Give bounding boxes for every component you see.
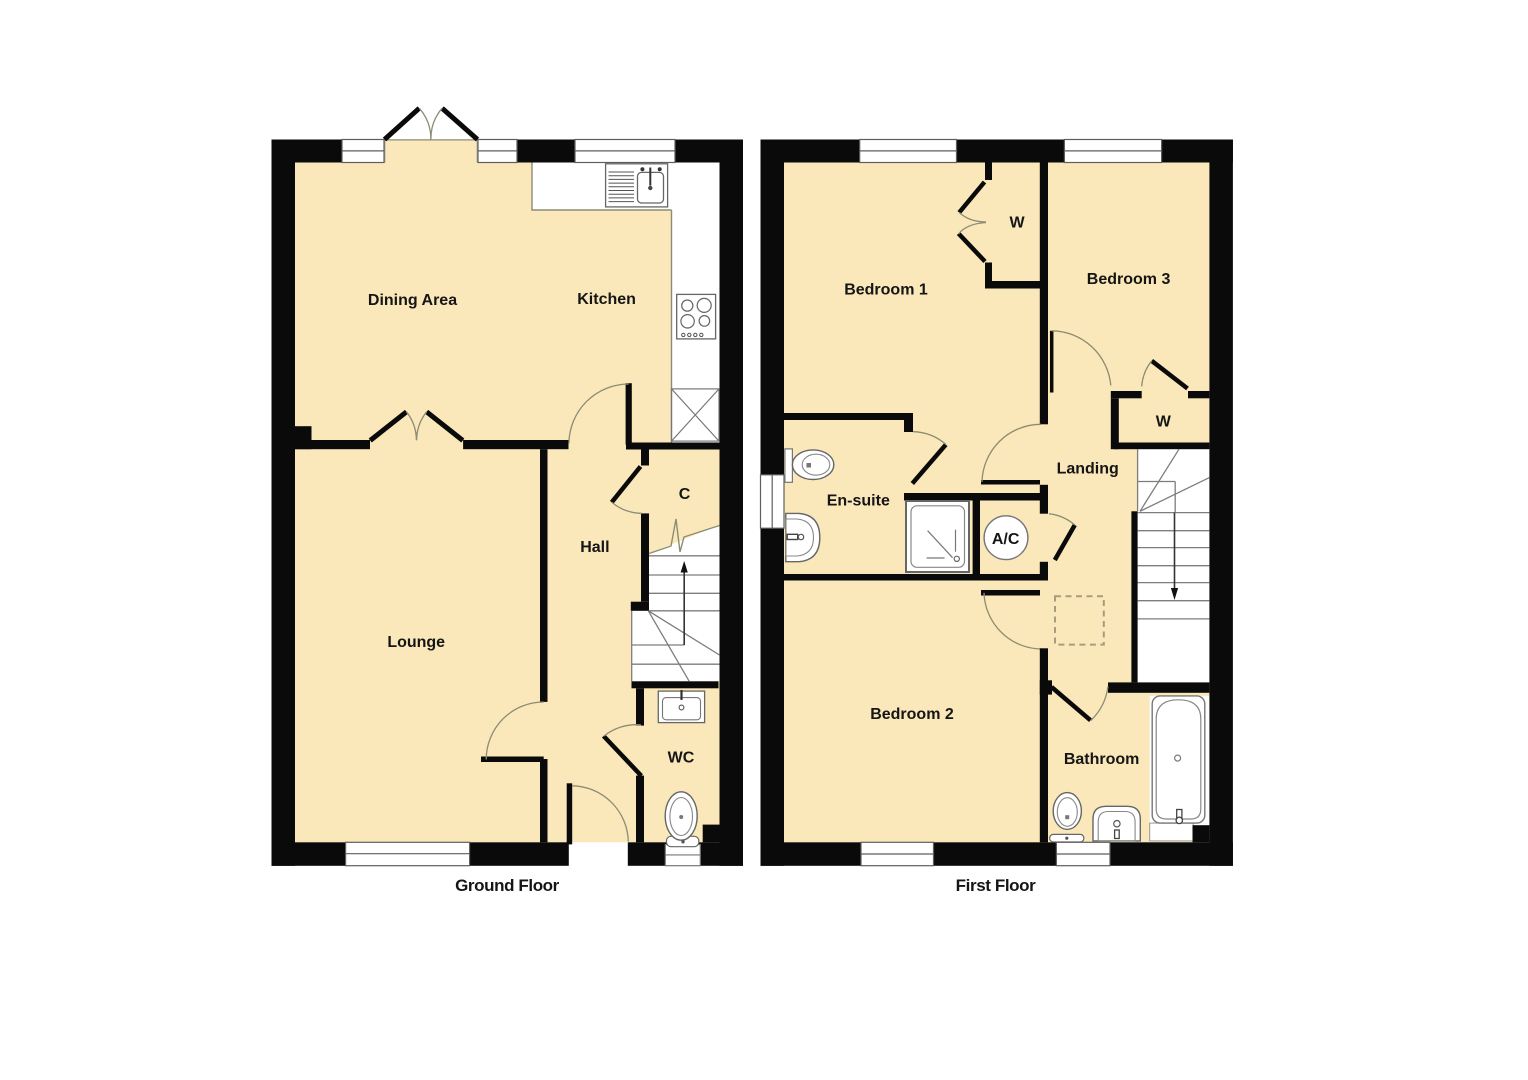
svg-text:C: C: [679, 486, 691, 503]
svg-text:Kitchen: Kitchen: [577, 291, 636, 308]
svg-text:Lounge: Lounge: [387, 634, 445, 651]
svg-text:Bedroom 1: Bedroom 1: [844, 282, 928, 299]
svg-text:Ground Floor: Ground Floor: [455, 876, 560, 895]
svg-text:Bedroom 2: Bedroom 2: [870, 706, 954, 723]
svg-text:Bedroom 3: Bedroom 3: [1087, 271, 1171, 288]
svg-text:Hall: Hall: [580, 539, 609, 556]
svg-text:Landing: Landing: [1057, 460, 1119, 477]
svg-text:WC: WC: [668, 749, 695, 766]
svg-text:A/C: A/C: [992, 531, 1020, 548]
svg-text:First Floor: First Floor: [956, 876, 1036, 895]
svg-text:Dining Area: Dining Area: [368, 292, 457, 309]
svg-text:W: W: [1009, 214, 1025, 231]
svg-text:W: W: [1156, 413, 1172, 430]
svg-text:En-suite: En-suite: [827, 492, 890, 509]
svg-text:Bathroom: Bathroom: [1064, 751, 1140, 768]
